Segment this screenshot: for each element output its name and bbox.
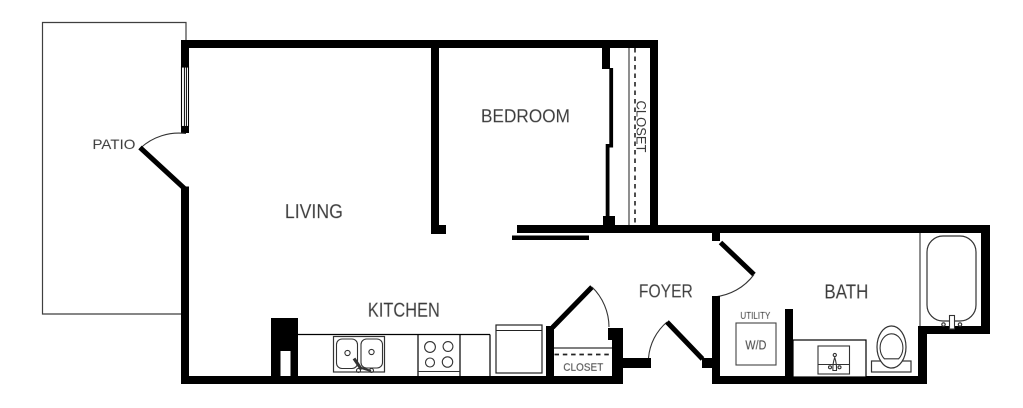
svg-text:LIVING: LIVING <box>285 201 343 223</box>
svg-text:BATH: BATH <box>824 281 868 303</box>
svg-text:KITCHEN: KITCHEN <box>368 300 440 322</box>
svg-text:FOYER: FOYER <box>639 281 693 301</box>
svg-text:CLOSET: CLOSET <box>634 101 649 153</box>
svg-text:CLOSET: CLOSET <box>563 362 603 374</box>
svg-text:PATIO: PATIO <box>92 136 135 152</box>
svg-text:W/D: W/D <box>745 338 766 352</box>
svg-text:UTILITY: UTILITY <box>740 311 770 322</box>
svg-text:BEDROOM: BEDROOM <box>481 106 570 126</box>
